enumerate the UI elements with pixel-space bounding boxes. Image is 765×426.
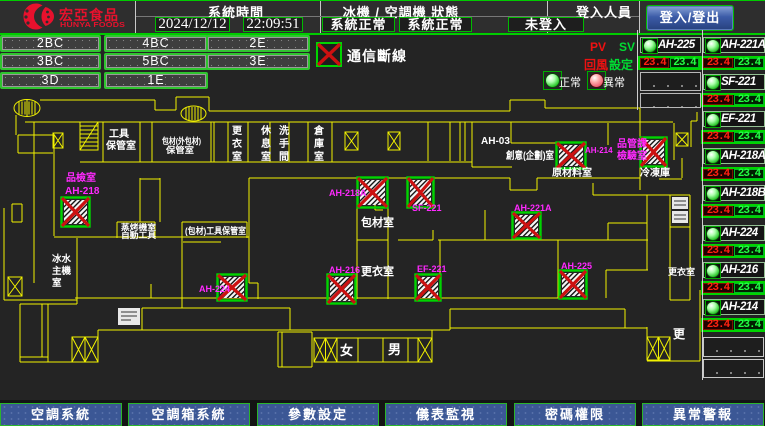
svg-text:倉: 倉	[313, 124, 325, 137]
svg-text:工具: 工具	[109, 128, 129, 140]
svg-text:手: 手	[279, 137, 289, 150]
svg-text:檢驗室: 檢驗室	[617, 149, 647, 162]
svg-text:品檢室: 品檢室	[66, 171, 96, 184]
svg-text:自動工具: 自動工具	[121, 230, 156, 240]
svg-text:主機: 主機	[52, 265, 72, 277]
svg-text:EF-221: EF-221	[417, 264, 447, 274]
svg-text:AH-225: AH-225	[561, 261, 592, 271]
svg-text:SF-221: SF-221	[412, 203, 442, 213]
svg-text:創意(企劃)室: 創意(企劃)室	[505, 149, 554, 162]
svg-text:女: 女	[340, 343, 353, 358]
svg-text:室: 室	[314, 150, 324, 163]
svg-text:AH-216: AH-216	[329, 265, 360, 275]
svg-text:室: 室	[261, 150, 271, 163]
svg-text:AH-221A: AH-221A	[514, 203, 552, 213]
svg-text:更: 更	[232, 125, 243, 137]
svg-text:息: 息	[261, 137, 271, 150]
svg-text:(包材)工具保管室: (包材)工具保管室	[185, 225, 246, 236]
svg-text:室: 室	[232, 150, 242, 163]
svg-text:AH-03: AH-03	[481, 136, 510, 147]
svg-text:更: 更	[673, 327, 686, 341]
svg-text:品管課: 品管課	[617, 137, 647, 150]
svg-text:AH-224: AH-224	[199, 284, 230, 294]
svg-text:冷凍庫: 冷凍庫	[640, 166, 670, 179]
svg-text:男: 男	[388, 342, 401, 357]
svg-text:間: 間	[279, 151, 289, 163]
svg-text:原材料室: 原材料室	[552, 166, 592, 179]
svg-text:更衣室: 更衣室	[361, 264, 394, 278]
svg-text:休: 休	[260, 124, 272, 137]
svg-text:包材室: 包材室	[360, 215, 394, 229]
svg-text:AH-218: AH-218	[65, 186, 100, 197]
svg-text:更衣室: 更衣室	[668, 266, 695, 277]
svg-text:洗: 洗	[279, 124, 289, 137]
svg-text:室: 室	[52, 277, 62, 289]
svg-text:AH-214: AH-214	[585, 146, 613, 155]
svg-text:庫: 庫	[314, 137, 324, 150]
svg-text:保管室: 保管室	[105, 139, 136, 152]
svg-text:冰水: 冰水	[52, 253, 72, 265]
svg-text:衣: 衣	[232, 137, 242, 150]
svg-text:保管室: 保管室	[165, 145, 195, 155]
svg-text:AH-218A: AH-218A	[329, 188, 367, 198]
